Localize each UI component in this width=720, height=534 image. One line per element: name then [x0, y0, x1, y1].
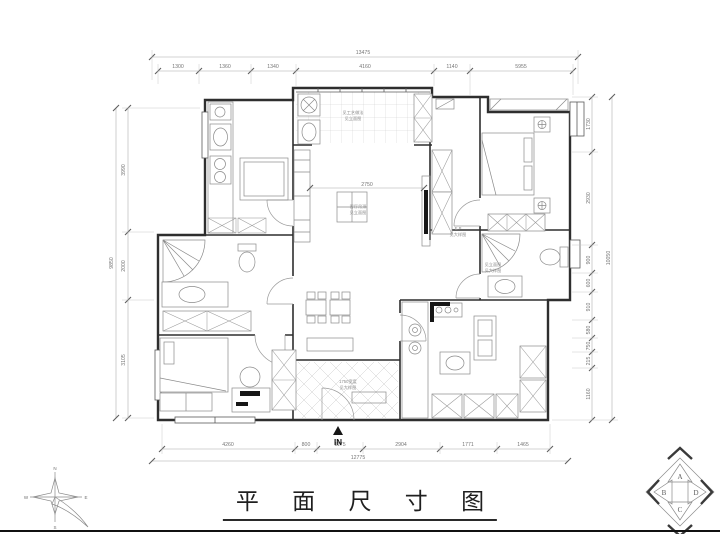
inner-dim-living: 2750	[361, 182, 373, 188]
dim-bottom-seg-1: 800	[302, 442, 311, 448]
logo-letter-a: A	[677, 473, 682, 481]
annotation-balcony-2: 见立面图	[345, 115, 362, 122]
dim-right-seg-0: 1730	[586, 118, 592, 130]
dim-top-seg-4: 1140	[446, 64, 457, 70]
bottom-left-bedroom	[160, 338, 296, 412]
dim-top-total: 13475	[356, 50, 371, 56]
dimension-bottom: 4260 800 1175 2904 1771 1465 12775	[149, 424, 571, 464]
entry-tile-floor	[296, 362, 398, 418]
dim-right-seg-4: 910	[586, 303, 592, 312]
compass-n-label: N	[53, 466, 56, 471]
dim-top-seg-3: 4160	[359, 64, 371, 70]
dim-bottom-seg-3: 2904	[395, 442, 407, 448]
dim-right-seg-3: 600	[586, 279, 592, 288]
dim-bottom-seg-5: 1465	[517, 442, 529, 448]
drawing-sheet: 2750	[0, 0, 720, 534]
annotation-hall-2: 见大样图	[450, 231, 467, 238]
dim-top-seg-2: 1340	[267, 64, 279, 70]
kitchen-top-left	[208, 102, 288, 233]
master-bedroom	[482, 117, 550, 231]
dim-right-seg-8: 1160	[586, 388, 592, 399]
compass-north-arrow: N E S W	[24, 466, 88, 530]
title-underline	[223, 519, 497, 521]
annotation-living-1: 客厅吊顶	[350, 203, 368, 210]
dim-top-seg-1: 1360	[219, 64, 231, 70]
dim-right-seg-7: 215	[586, 357, 592, 366]
annotation-bath-1: 见立面图	[485, 261, 502, 268]
dim-left-total: 9850	[109, 257, 115, 269]
annotation-entry-1: 1750宽度	[339, 378, 358, 385]
dim-right-total: 10050	[606, 251, 612, 266]
brand-logo: A B D C	[646, 448, 714, 534]
drawing-title-block: 平 面 尺 寸 图	[223, 482, 497, 521]
entry-in-marker: IN	[333, 426, 343, 447]
annotation-living-2: 见立面图	[350, 209, 367, 216]
floor-plan-svg: 2750	[0, 0, 720, 534]
logo-letter-c: C	[678, 506, 683, 514]
dim-top-seg-5: 5955	[515, 64, 527, 70]
dim-right-seg-1: 2930	[586, 192, 592, 204]
dim-left-seg-1: 2000	[121, 260, 127, 272]
compass-w-label: W	[24, 495, 29, 500]
annotation-entry-2: 见大样图	[340, 384, 357, 391]
dim-bottom-total: 12775	[351, 455, 366, 461]
dim-left-seg-0: 3990	[121, 164, 127, 176]
dim-left-seg-2: 3105	[121, 354, 127, 366]
logo-letter-b: B	[662, 489, 667, 497]
dim-right-seg-2: 900	[586, 256, 592, 265]
sheet-border-bottom	[0, 530, 720, 532]
dim-right-seg-5: 580	[586, 326, 592, 335]
entry-in-label: IN	[334, 438, 342, 447]
annotation-hall-1: E.P	[455, 226, 462, 231]
logo-letter-d: D	[693, 489, 698, 497]
dim-right-seg-6: 750	[586, 342, 592, 351]
compass-e-label: E	[84, 495, 87, 500]
bottom-right-kitchen	[402, 302, 546, 418]
dim-bottom-seg-0: 4260	[222, 442, 234, 448]
left-bathroom	[162, 240, 256, 331]
dim-top-seg-0: 1300	[172, 64, 184, 70]
dim-bottom-seg-4: 1771	[462, 442, 474, 448]
drawing-title: 平 面 尺 寸 图	[223, 482, 497, 516]
annotation-balcony-1: 见工艺做法	[343, 109, 364, 116]
annotation-bath-2: 见大样图	[485, 267, 502, 274]
living-room: 2750	[294, 150, 430, 351]
